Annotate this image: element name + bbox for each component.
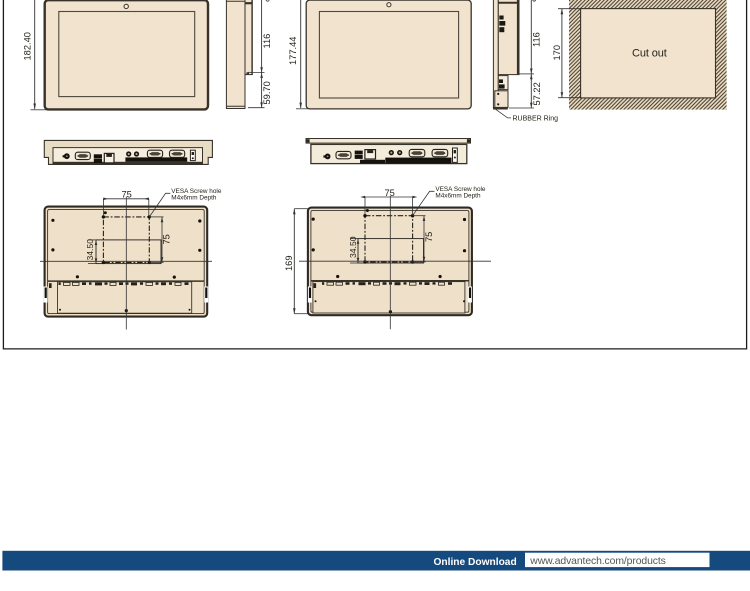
svg-text:www.advantech.com/products: www.advantech.com/products	[529, 556, 665, 567]
svg-text:75: 75	[162, 234, 172, 244]
svg-text:RUBBER Ring: RUBBER Ring	[513, 116, 559, 123]
svg-text:170: 170	[552, 45, 562, 61]
svg-text:75: 75	[122, 190, 132, 200]
svg-text:Online Download: Online Download	[434, 557, 517, 568]
svg-text:M4x6mm Depth: M4x6mm Depth	[435, 192, 481, 199]
svg-text:116: 116	[532, 32, 542, 47]
svg-text:169: 169	[284, 255, 294, 271]
svg-text:116: 116	[262, 34, 272, 49]
svg-text:59.70: 59.70	[262, 81, 272, 104]
svg-text:M4x6mm Depth: M4x6mm Depth	[171, 195, 217, 202]
svg-text:182.40: 182.40	[23, 32, 33, 60]
svg-text:75: 75	[424, 232, 434, 242]
svg-text:Cut out: Cut out	[632, 47, 667, 59]
svg-text:34.50: 34.50	[85, 239, 95, 261]
svg-text:34.50: 34.50	[348, 236, 358, 258]
svg-text:75: 75	[385, 188, 395, 198]
svg-text:177.44: 177.44	[288, 37, 298, 65]
svg-text:57.22: 57.22	[532, 82, 542, 105]
